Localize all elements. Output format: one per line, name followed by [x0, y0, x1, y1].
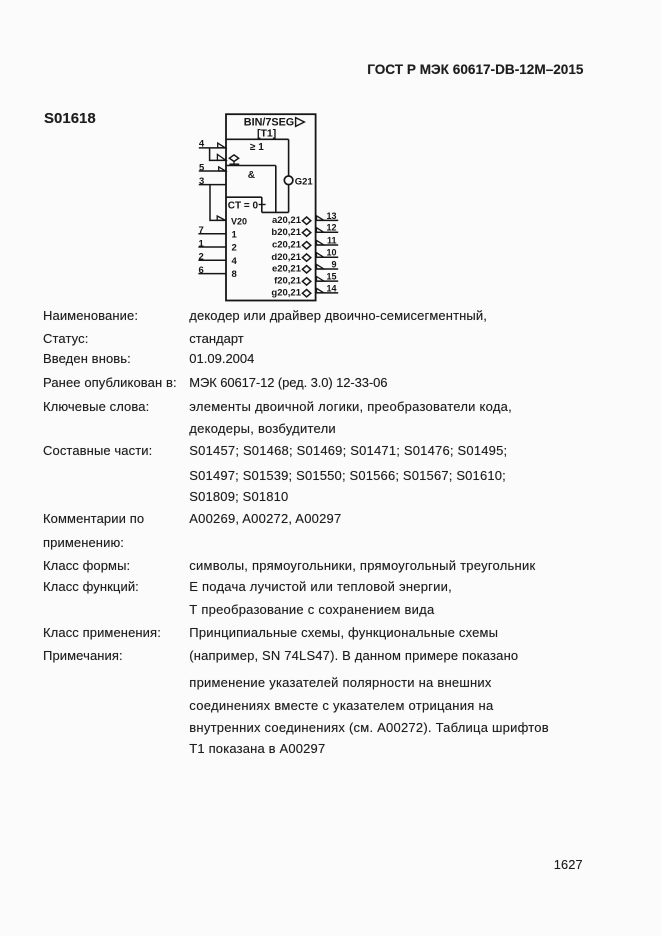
svg-text:7: 7 [199, 225, 204, 236]
svg-text:12: 12 [326, 223, 336, 233]
svg-text:2: 2 [199, 252, 204, 263]
svg-text:14: 14 [326, 283, 336, 293]
svg-text:&: & [248, 170, 255, 181]
svg-text:d20,21: d20,21 [271, 252, 301, 263]
svg-text:b20,21: b20,21 [271, 227, 301, 238]
svg-text:g20,21: g20,21 [271, 288, 301, 299]
svg-text:e20,21: e20,21 [272, 264, 302, 275]
svg-text:≥ 1: ≥ 1 [250, 142, 264, 153]
svg-text:10: 10 [326, 248, 336, 258]
svg-text:a20,21: a20,21 [272, 215, 302, 226]
svg-text:15: 15 [326, 272, 336, 282]
svg-text:11: 11 [327, 235, 337, 245]
svg-text:4: 4 [232, 256, 238, 267]
svg-text:c20,21: c20,21 [272, 240, 302, 251]
svg-text:9: 9 [331, 259, 336, 269]
svg-text:[T1]: [T1] [257, 128, 276, 140]
svg-text:f20,21: f20,21 [274, 276, 302, 287]
svg-text:1: 1 [232, 229, 238, 240]
svg-text:G21: G21 [295, 177, 314, 188]
svg-text:13: 13 [326, 211, 336, 221]
svg-text:CT = 0: CT = 0 [228, 201, 259, 212]
svg-text:V20: V20 [231, 217, 247, 227]
svg-text:8: 8 [232, 269, 237, 280]
svg-text:2: 2 [232, 243, 237, 254]
